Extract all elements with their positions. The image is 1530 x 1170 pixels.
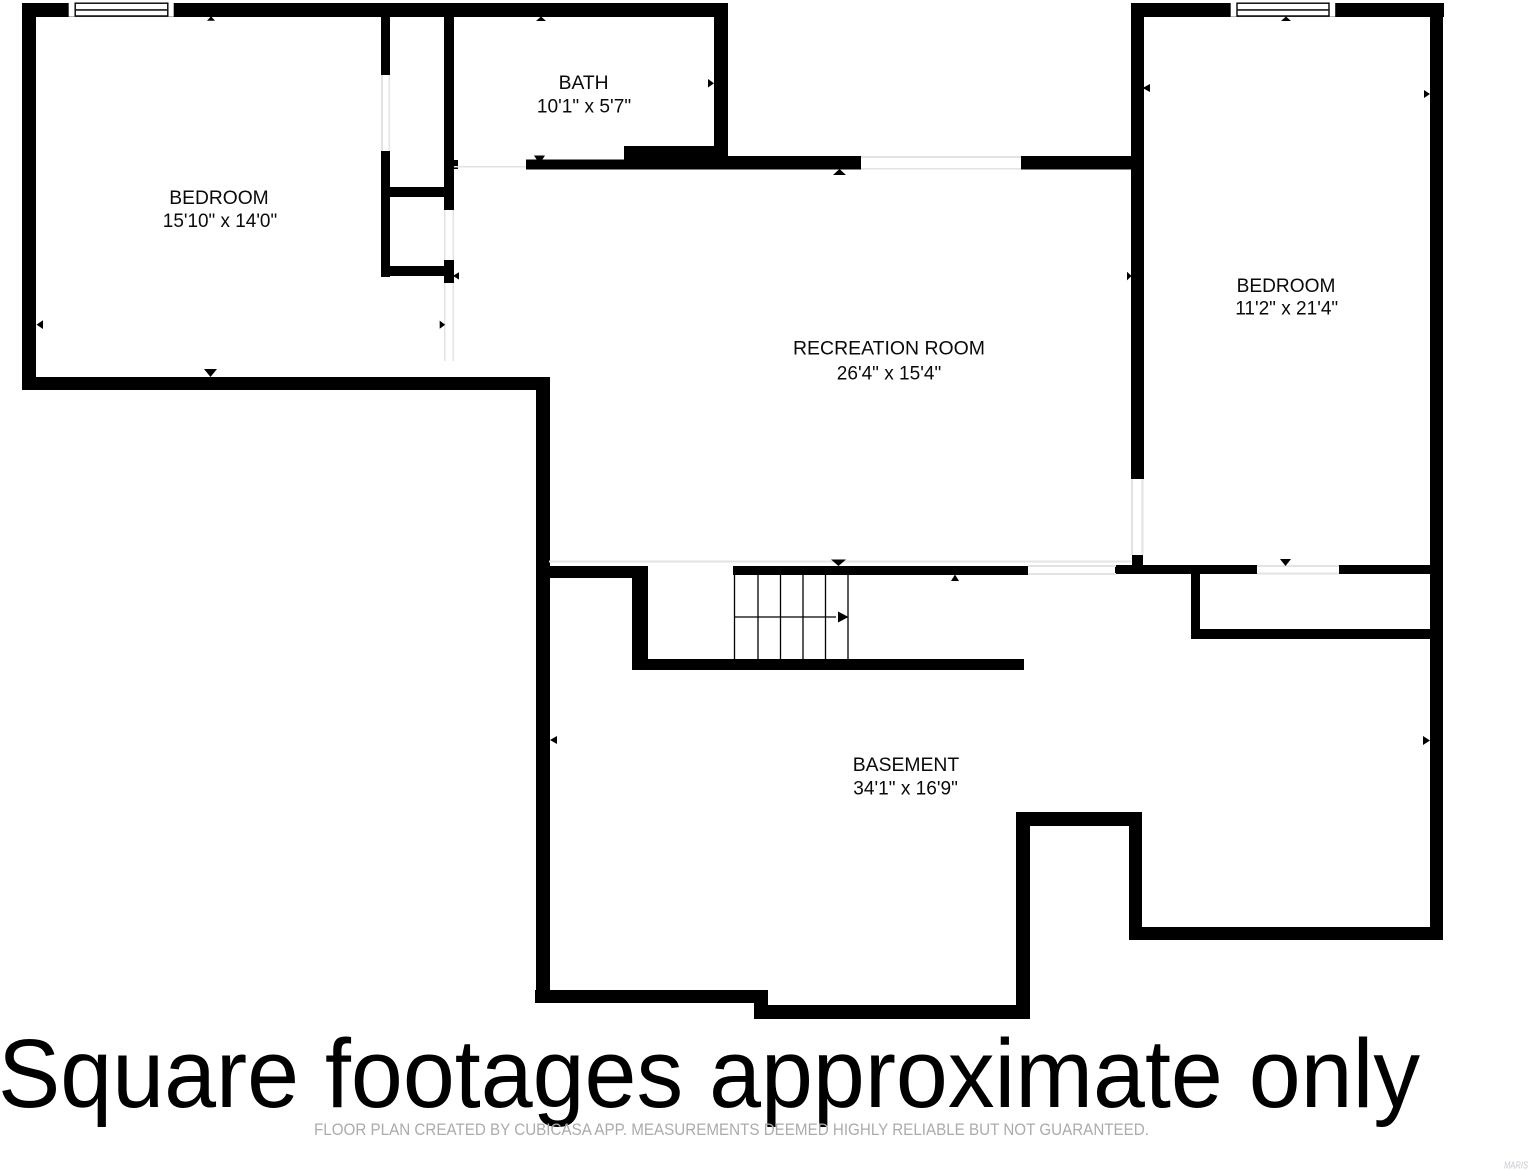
svg-text:BEDROOM: BEDROOM <box>169 187 268 209</box>
svg-text:BEDROOM: BEDROOM <box>1237 275 1336 297</box>
svg-text:15'10" x 14'0": 15'10" x 14'0" <box>163 210 277 232</box>
svg-text:26'4" x 15'4": 26'4" x 15'4" <box>837 362 942 384</box>
svg-text:BATH: BATH <box>559 72 609 94</box>
svg-text:MARIS: MARIS <box>1504 1160 1528 1170</box>
svg-text:Square footages approximate on: Square footages approximate only <box>0 1019 1420 1128</box>
svg-text:34'1" x 16'9": 34'1" x 16'9" <box>853 777 958 799</box>
svg-text:RECREATION ROOM: RECREATION ROOM <box>793 338 985 360</box>
svg-text:10'1" x 5'7": 10'1" x 5'7" <box>537 96 631 118</box>
svg-text:11'2" x 21'4": 11'2" x 21'4" <box>1235 297 1338 319</box>
svg-text:BASEMENT: BASEMENT <box>853 754 960 776</box>
svg-text:FLOOR PLAN CREATED BY CUBICASA: FLOOR PLAN CREATED BY CUBICASA APP. MEAS… <box>314 1120 1149 1139</box>
